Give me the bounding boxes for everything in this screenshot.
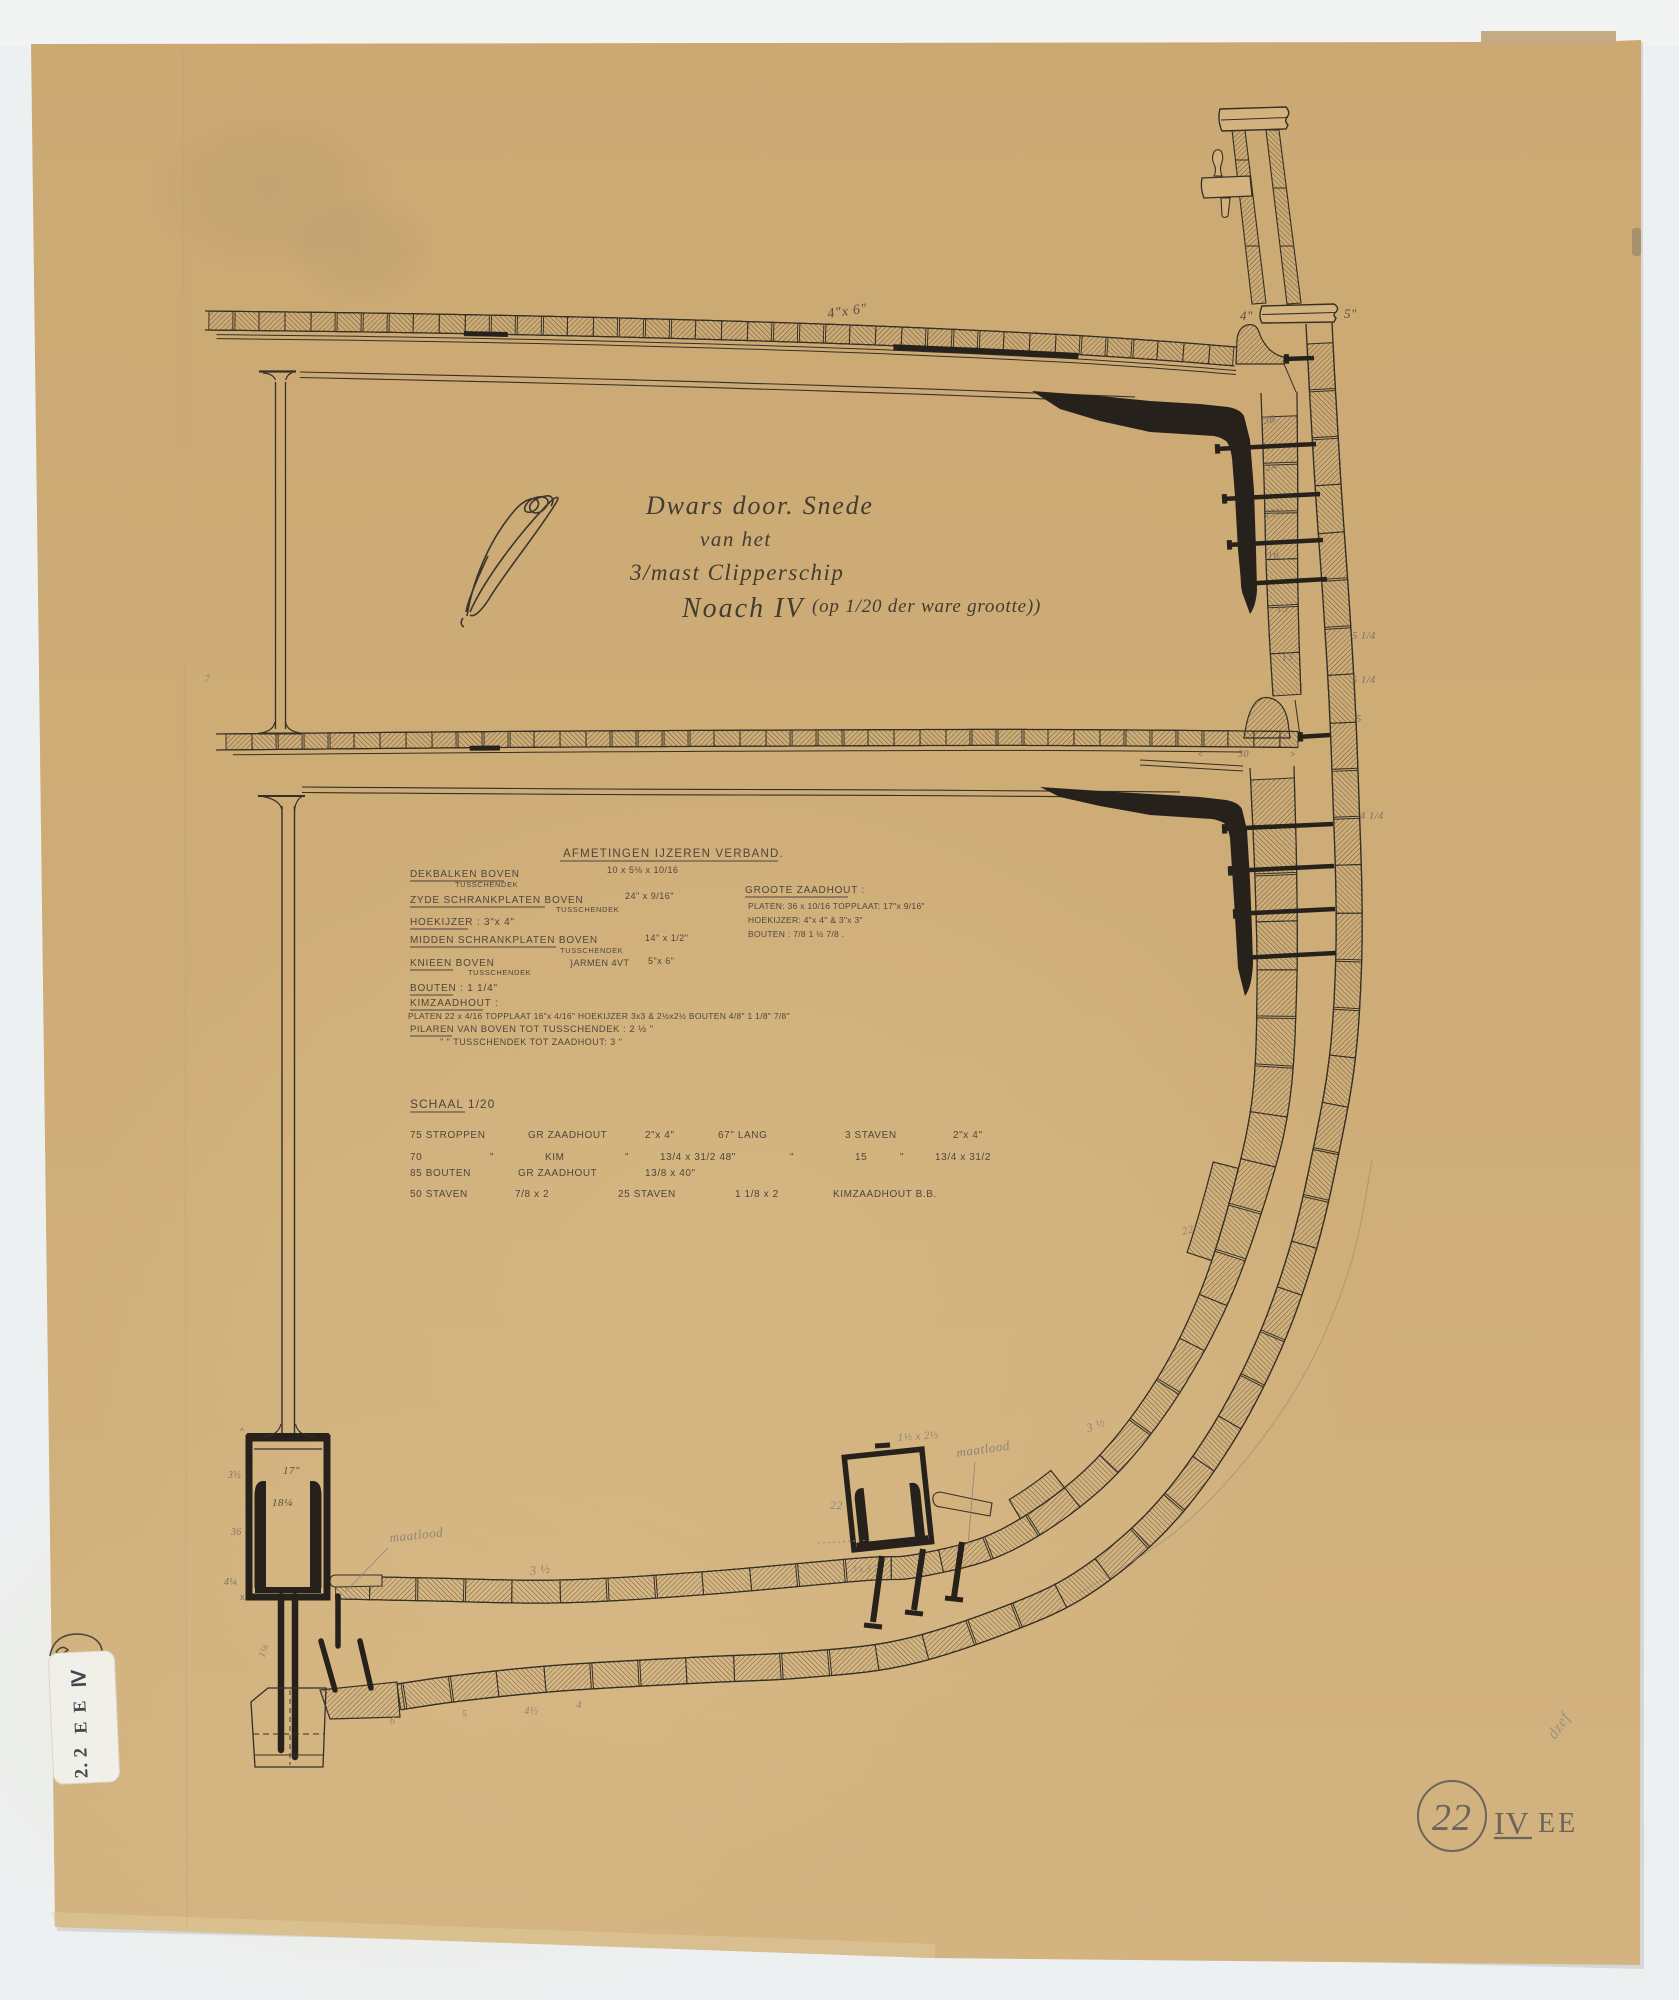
svg-text:5 1/4: 5 1/4 bbox=[1352, 675, 1376, 686]
svg-text:17": 17" bbox=[283, 1465, 300, 1477]
svg-text:KIMZAADHOUT :: KIMZAADHOUT : bbox=[410, 998, 499, 1009]
svg-text:van het: van het bbox=[700, 527, 772, 551]
svg-text:18¼: 18¼ bbox=[272, 1497, 293, 1509]
svg-text:3 x 3 ?: 3 x 3 ? bbox=[851, 1564, 879, 1574]
svg-text:4": 4" bbox=[1240, 308, 1253, 323]
svg-text:E: E bbox=[69, 1699, 90, 1713]
svg-text:4 1/4: 4 1/4 bbox=[1360, 811, 1384, 822]
svg-text:67" LANG: 67" LANG bbox=[718, 1130, 767, 1141]
svg-text:2.: 2. bbox=[71, 1762, 93, 1779]
svg-text:MIDDEN SCHRANKPLATEN BOVEN: MIDDEN SCHRANKPLATEN BOVEN bbox=[410, 935, 598, 946]
svg-text:10 x 5⅛ x 10/16: 10 x 5⅛ x 10/16 bbox=[607, 865, 679, 875]
svg-text:7/8 x 2: 7/8 x 2 bbox=[515, 1189, 549, 1200]
svg-text:IV: IV bbox=[1494, 1805, 1530, 1841]
svg-text:2"x 4": 2"x 4" bbox=[953, 1130, 983, 1141]
svg-text:GR ZAADHOUT: GR ZAADHOUT bbox=[518, 1168, 597, 1179]
svg-text:2"x 4": 2"x 4" bbox=[645, 1130, 675, 1141]
svg-text:(op 1/20 der ware grootte)): (op 1/20 der ware grootte)) bbox=[812, 596, 1041, 617]
svg-text:75 STROPPEN: 75 STROPPEN bbox=[410, 1130, 486, 1141]
svg-text:24: 24 bbox=[1264, 460, 1278, 474]
svg-text:70: 70 bbox=[410, 1152, 422, 1163]
svg-text:PILAREN VAN BOVEN TOT TUSSCHEN: PILAREN VAN BOVEN TOT TUSSCHENDEK : 2 ½ … bbox=[410, 1024, 654, 1035]
svg-text:4: 4 bbox=[576, 1699, 582, 1711]
svg-text:KIMZAADHOUT B.B.: KIMZAADHOUT B.B. bbox=[833, 1189, 937, 1200]
svg-text:13: 13 bbox=[1280, 650, 1294, 664]
svg-text:PLATEN 22 x 4/16 TOPPLAAT 1: PLATEN 22 x 4/16 TOPPLAAT 16"x 4/16" HOE… bbox=[408, 1011, 790, 1021]
svg-text:": " bbox=[490, 1152, 494, 1163]
svg-text:BOUTEN : 7/8 1 ½ 7/8 .: BOUTEN : 7/8 1 ½ 7/8 . bbox=[748, 929, 844, 939]
svg-text:TUSSCHENDEK: TUSSCHENDEK bbox=[468, 968, 531, 977]
svg-text:22: 22 bbox=[1432, 1797, 1472, 1839]
svg-text:PLATEN: 36 x 10/16 TOPPLAAT:: PLATEN: 36 x 10/16 TOPPLAAT: 17"x 9/16" bbox=[748, 901, 925, 911]
svg-text:x: x bbox=[240, 1592, 245, 1602]
svg-text:14" x 1/2": 14" x 1/2" bbox=[645, 933, 688, 943]
svg-text:5: 5 bbox=[462, 1709, 467, 1720]
svg-text:5"x 6": 5"x 6" bbox=[648, 956, 674, 966]
svg-text:5": 5" bbox=[1344, 306, 1357, 321]
svg-text:30: 30 bbox=[1237, 749, 1249, 760]
svg-text:Noach IV: Noach IV bbox=[681, 593, 805, 624]
svg-text:GROOTE ZAADHOUT :: GROOTE ZAADHOUT : bbox=[745, 885, 865, 896]
svg-text:TUSSCHENDEK: TUSSCHENDEK bbox=[455, 880, 518, 889]
svg-text:TUSSCHENDEK: TUSSCHENDEK bbox=[556, 905, 619, 914]
svg-text:": " bbox=[900, 1152, 904, 1163]
svg-text:": " bbox=[625, 1152, 629, 1163]
svg-text:AFMETINGEN IJZEREN VERBAND.: AFMETINGEN IJZEREN VERBAND. bbox=[563, 848, 784, 860]
svg-text:16: 16 bbox=[1266, 548, 1280, 562]
svg-text:BOUTEN : 1 1/4": BOUTEN : 1 1/4" bbox=[410, 983, 498, 994]
svg-text:}ARMEN 4VT: }ARMEN 4VT bbox=[570, 958, 630, 968]
svg-text:4½: 4½ bbox=[524, 1705, 538, 1717]
svg-text:13/8 x 40": 13/8 x 40" bbox=[645, 1168, 696, 1179]
svg-text:E: E bbox=[70, 1720, 91, 1734]
svg-text:13: 13 bbox=[1275, 602, 1289, 616]
svg-text:TUSSCHENDEK: TUSSCHENDEK bbox=[560, 946, 623, 955]
svg-text:Dwars door. Snede: Dwars door. Snede bbox=[645, 491, 874, 520]
svg-text:25 STAVEN: 25 STAVEN bbox=[618, 1189, 676, 1200]
svg-text:7: 7 bbox=[205, 674, 211, 685]
svg-text:50 STAVEN: 50 STAVEN bbox=[410, 1189, 468, 1200]
svg-text:38: 38 bbox=[1261, 413, 1276, 427]
svg-text:3/mast Clipperschip: 3/mast Clipperschip bbox=[629, 560, 844, 585]
svg-text:3 STAVEN: 3 STAVEN bbox=[845, 1130, 897, 1141]
svg-text:85 BOUTEN: 85 BOUTEN bbox=[410, 1168, 471, 1179]
svg-text:22: 22 bbox=[830, 1498, 843, 1512]
svg-text:5: 5 bbox=[1356, 714, 1362, 725]
svg-text:": " bbox=[790, 1152, 794, 1163]
svg-text:15: 15 bbox=[855, 1152, 867, 1163]
svg-text:HOEKIJZER : 3"x 4": HOEKIJZER : 3"x 4" bbox=[410, 917, 515, 928]
svg-text:DEKBALKEN BOVEN: DEKBALKEN BOVEN bbox=[410, 869, 520, 880]
svg-text:HOEKIJZER: 4"x 4" & 3"x 3": HOEKIJZER: 4"x 4" & 3"x 3" bbox=[748, 915, 863, 925]
svg-text:>: > bbox=[1290, 749, 1296, 759]
svg-text:GR ZAADHOUT: GR ZAADHOUT bbox=[528, 1130, 607, 1141]
svg-text:" " TUSSCHENDEK TOT ZAAD: " " TUSSCHENDEK TOT ZAADHOUT: 3 " bbox=[440, 1037, 622, 1047]
svg-text:KIM: KIM bbox=[545, 1152, 565, 1163]
svg-text:3 ½: 3 ½ bbox=[528, 1561, 551, 1578]
svg-text:<: < bbox=[1198, 749, 1204, 759]
svg-text:^: ^ bbox=[240, 1426, 245, 1436]
svg-text:24" x 9/16": 24" x 9/16" bbox=[625, 891, 674, 901]
svg-text:1 1/8 x 2: 1 1/8 x 2 bbox=[735, 1189, 779, 1200]
svg-text:4¼: 4¼ bbox=[224, 1577, 237, 1588]
svg-text:6: 6 bbox=[390, 1716, 395, 1727]
svg-text:2: 2 bbox=[70, 1746, 91, 1757]
svg-text:3½: 3½ bbox=[227, 1470, 241, 1481]
svg-text:Ⅳ: Ⅳ bbox=[69, 1668, 91, 1687]
svg-text:13/4 x 31/2 48": 13/4 x 31/2 48" bbox=[660, 1152, 736, 1163]
svg-text:13/4 x 31/2: 13/4 x 31/2 bbox=[935, 1152, 991, 1163]
svg-text:5 1/4: 5 1/4 bbox=[1352, 631, 1376, 642]
svg-text:EE: EE bbox=[1538, 1808, 1578, 1839]
svg-text:SCHAAL 1/20: SCHAAL 1/20 bbox=[410, 1097, 495, 1111]
svg-text:36: 36 bbox=[230, 1527, 242, 1538]
